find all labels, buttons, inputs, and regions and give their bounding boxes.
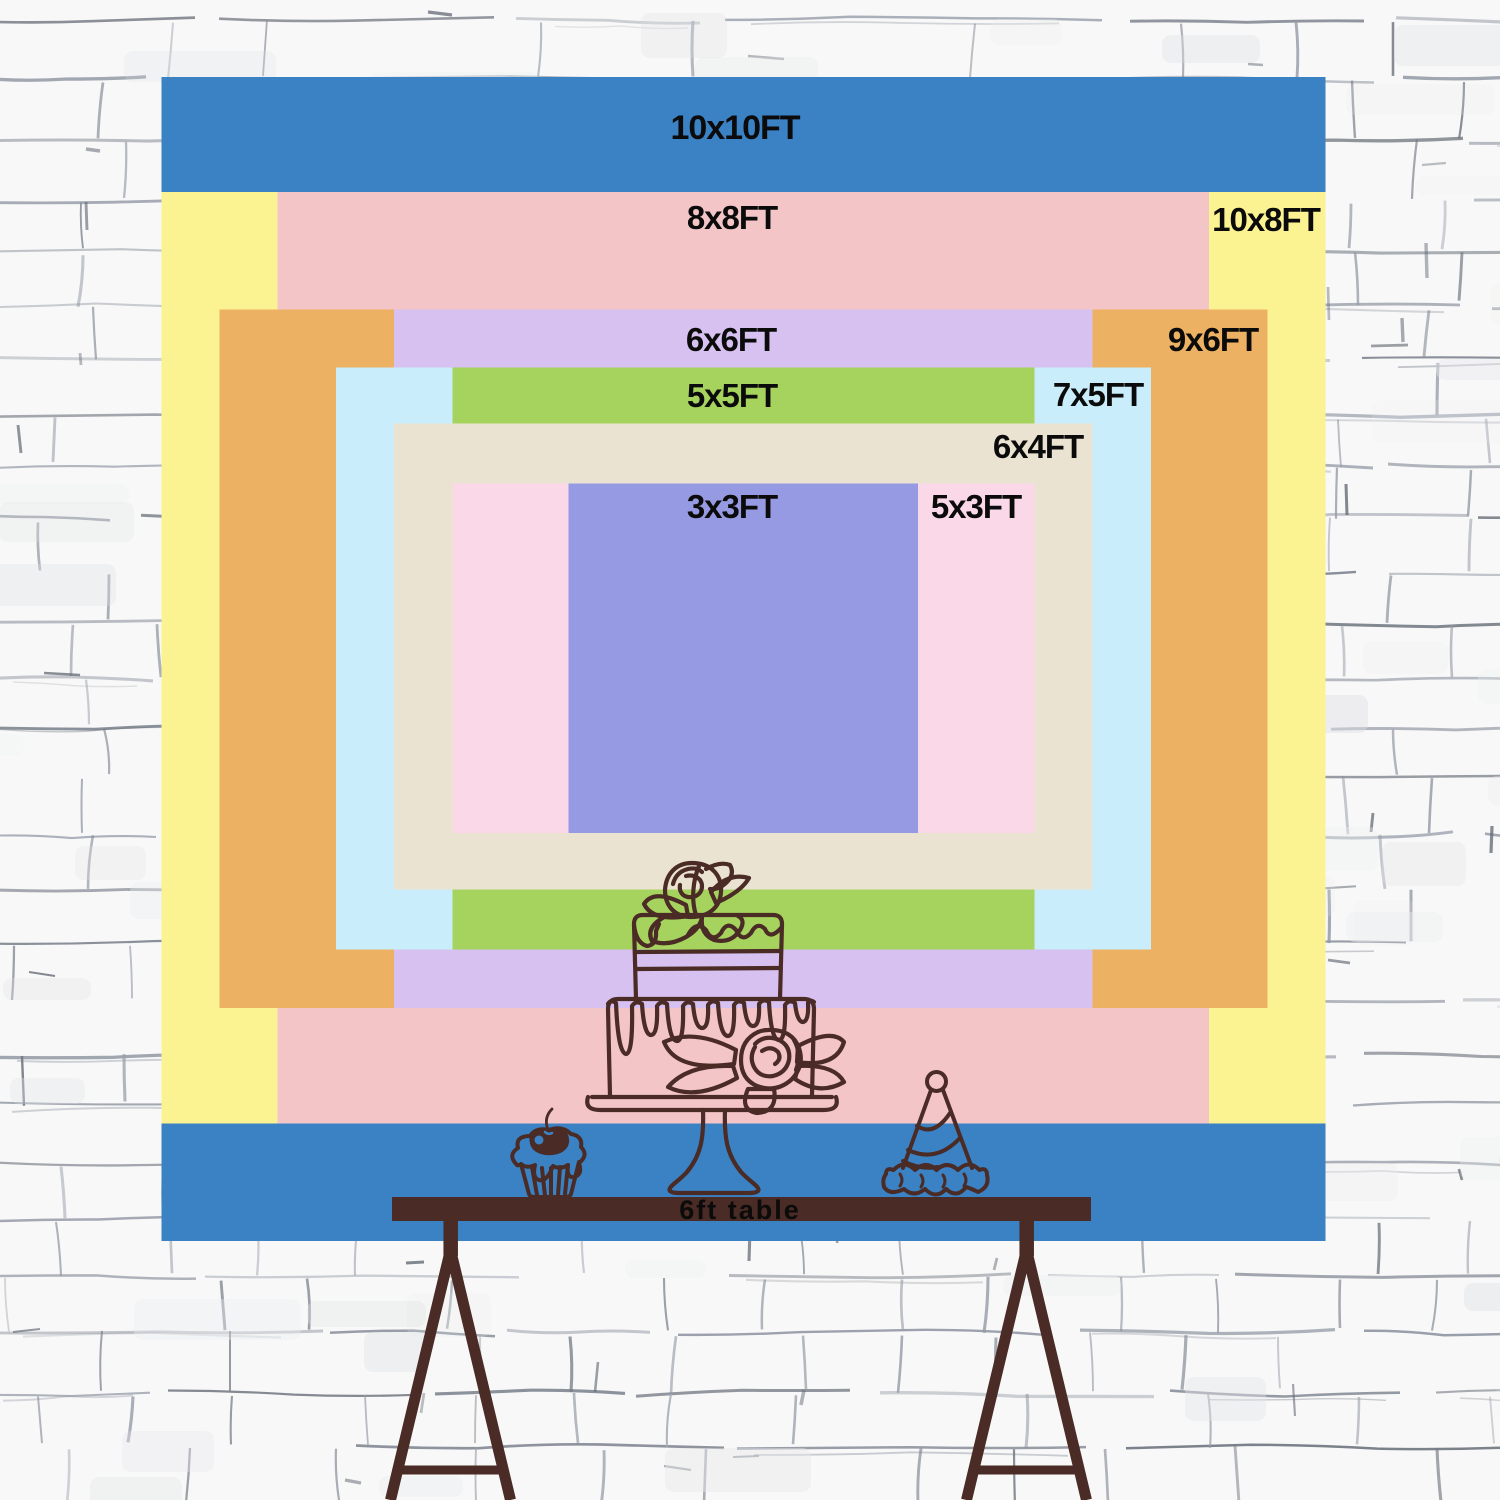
svg-text:5x3FT: 5x3FT (931, 488, 1022, 525)
svg-text:10x10FT: 10x10FT (670, 109, 800, 147)
svg-text:6ft table: 6ft table (679, 1195, 801, 1225)
svg-text:6x6FT: 6x6FT (686, 321, 777, 358)
svg-text:10x8FT: 10x8FT (1212, 201, 1321, 238)
svg-text:8x8FT: 8x8FT (687, 199, 778, 236)
svg-text:5x5FT: 5x5FT (687, 377, 778, 414)
svg-text:7x5FT: 7x5FT (1053, 376, 1144, 413)
svg-text:9x6FT: 9x6FT (1168, 321, 1259, 358)
svg-text:6x4FT: 6x4FT (993, 428, 1084, 465)
svg-text:3x3FT: 3x3FT (687, 488, 778, 525)
